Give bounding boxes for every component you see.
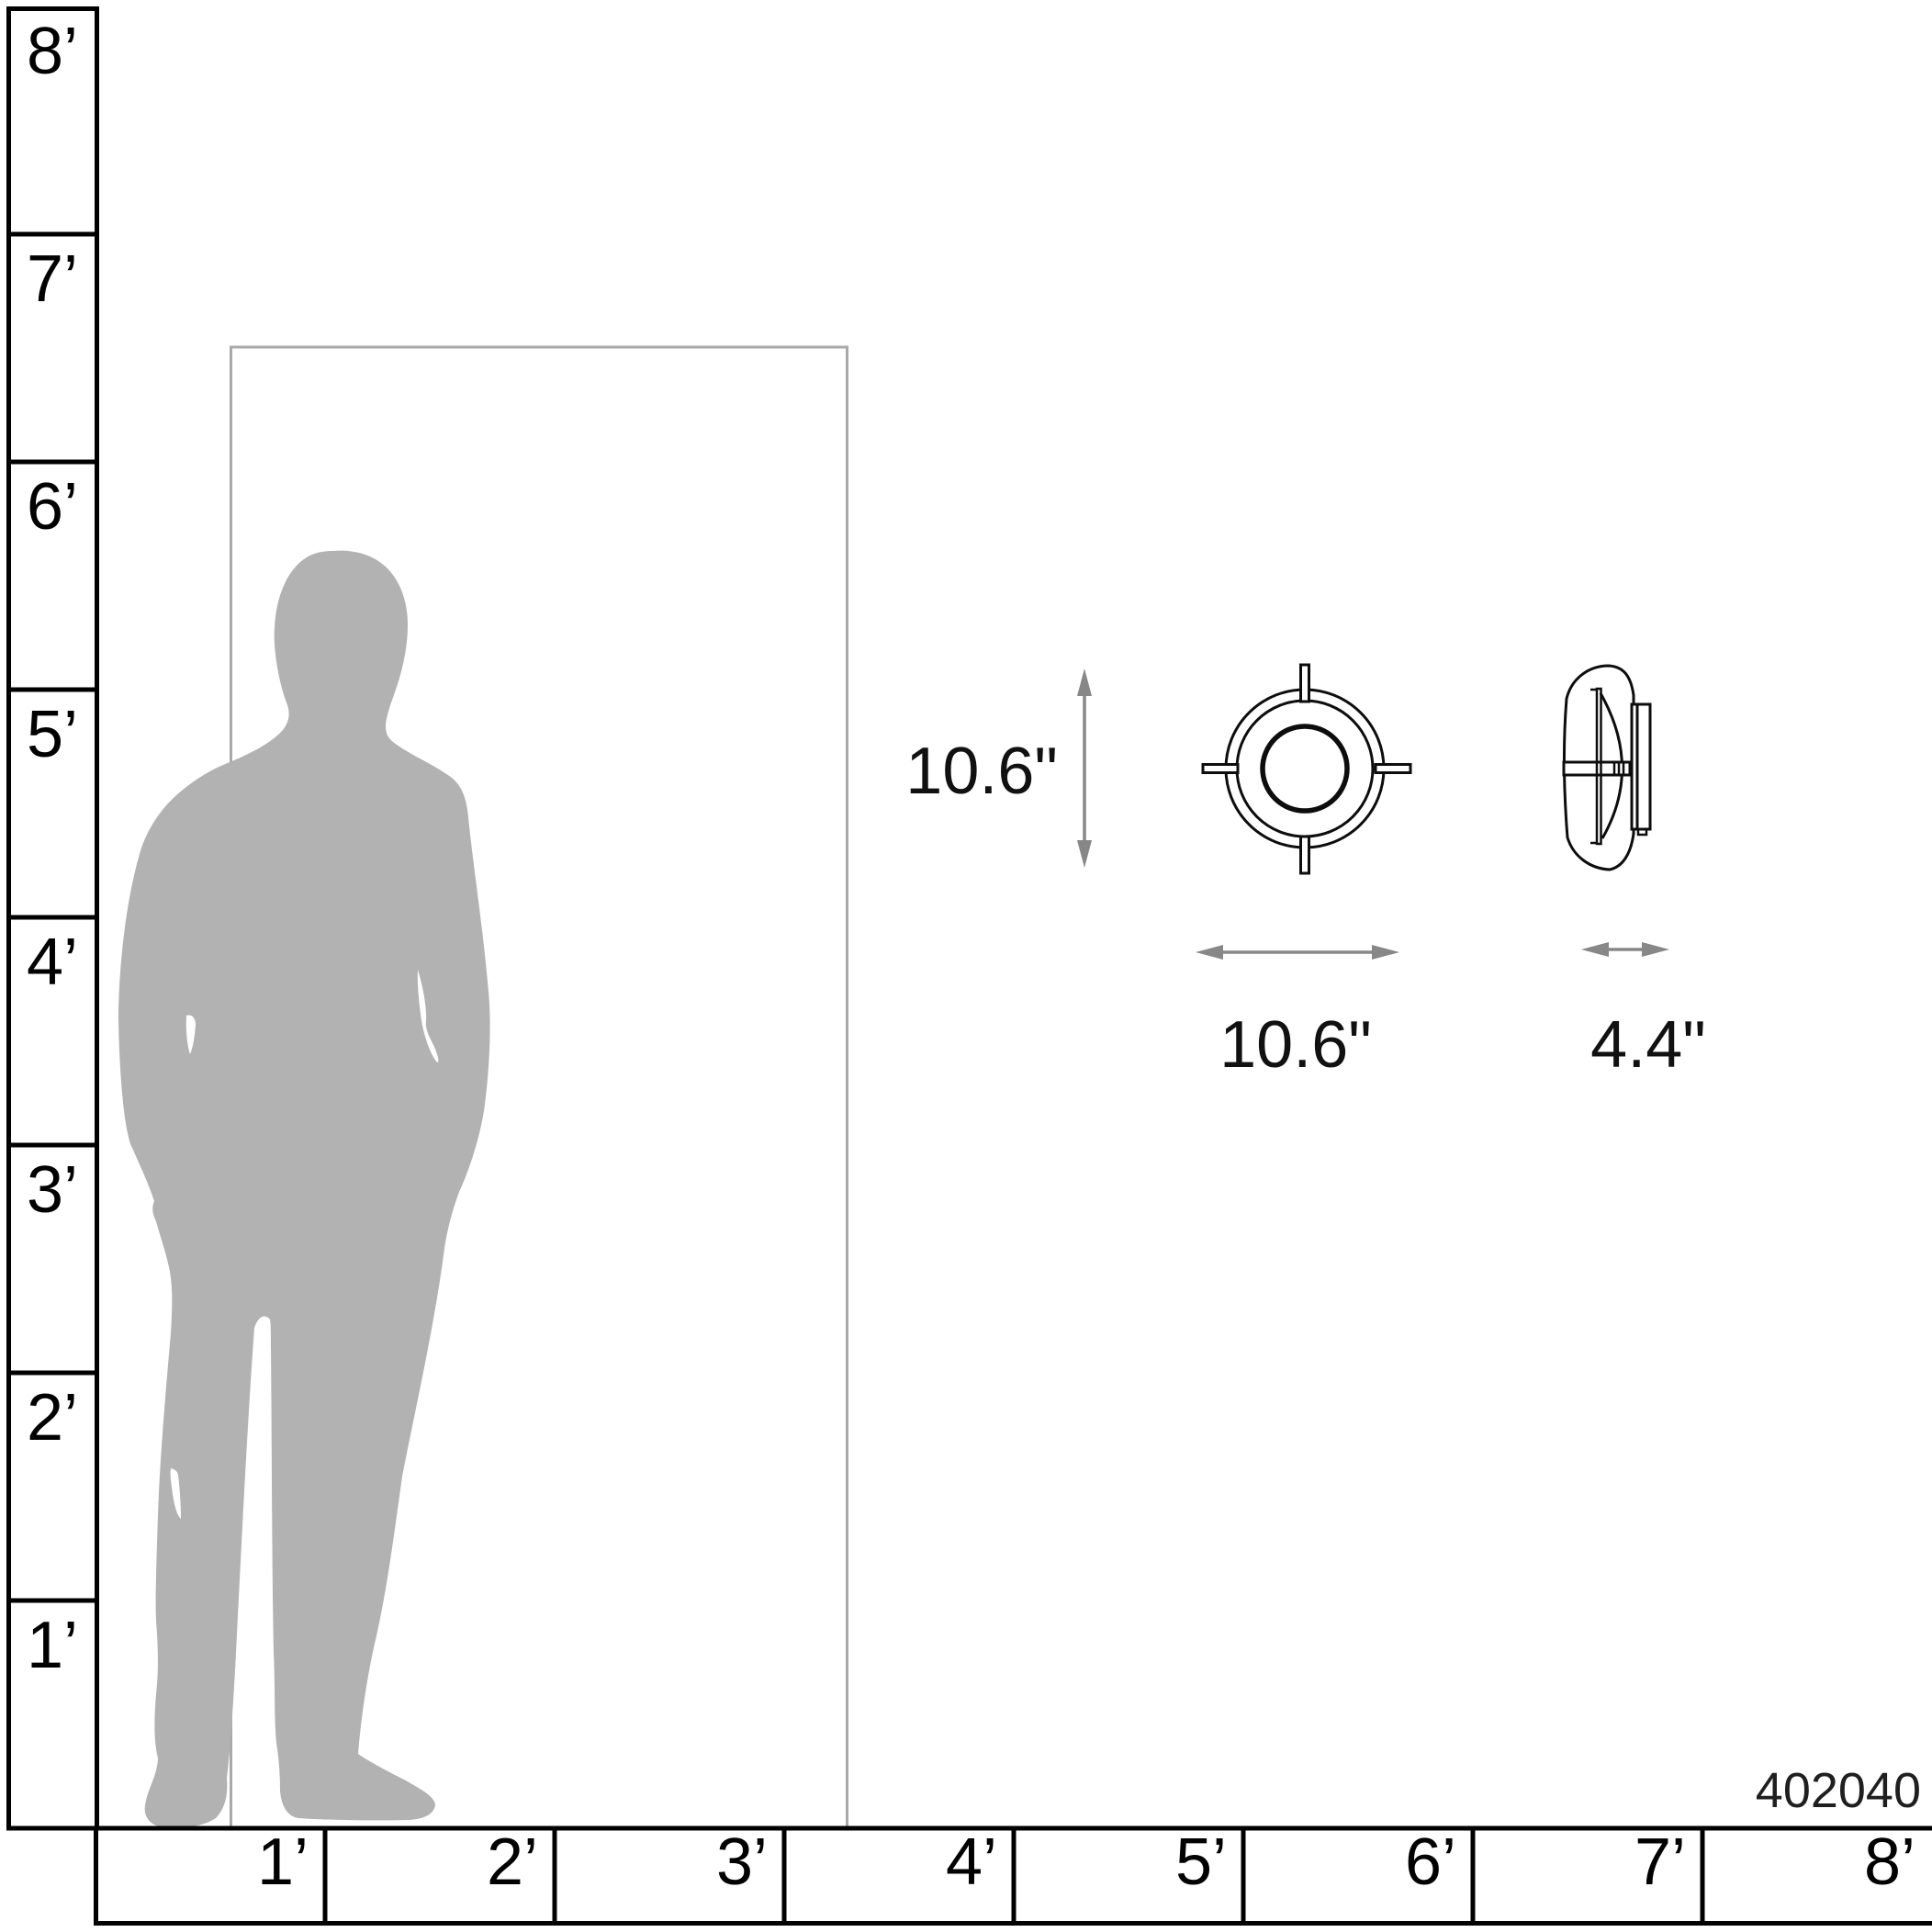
dimension-width: 10.6" [1196,945,1399,1082]
man-silhouette-body [118,551,490,1828]
fixture-side-plate-notch [1638,829,1646,835]
height-dimension-label: 10.6" [905,735,1058,808]
fixture-front-left-tab [1203,765,1238,773]
horizontal-ruler-label-8ft: 8’ [1864,1825,1915,1899]
horizontal-ruler: 1’ 2’ 3’ 4’ 5’ 6’ 7’ 8’ [6,1825,1932,1926]
vertical-ruler-label-3ft: 3’ [27,1153,78,1227]
vertical-ruler-label-6ft: 6’ [27,470,78,544]
width-arrow-head-right-icon [1372,945,1399,960]
depth-arrow-head-right-icon [1642,942,1669,957]
horizontal-ruler-label-3ft: 3’ [716,1825,768,1899]
man-silhouette-icon [118,551,490,1828]
height-arrow-head-up-icon [1077,668,1092,696]
fixture-front-top-tab [1301,665,1309,702]
height-arrow-head-down-icon [1077,840,1092,868]
horizontal-ruler-label-6ft: 6’ [1405,1825,1456,1899]
fixture-front-right-tab [1376,765,1410,773]
horizontal-ruler-label-7ft: 7’ [1634,1825,1686,1899]
horizontal-ruler-label-2ft: 2’ [487,1825,538,1899]
vertical-ruler: 8’ 7’ 6’ 5’ 4’ 3’ 2’ 1’ [6,6,99,1828]
vertical-ruler-label-2ft: 2’ [27,1381,78,1455]
vertical-ruler-label-4ft: 4’ [27,926,78,999]
fixture-front-view-icon [1203,665,1410,873]
product-code: 402040 [1756,1763,1921,1818]
vertical-ruler-label-5ft: 5’ [27,698,78,771]
width-dimension-label: 10.6" [1219,1008,1372,1082]
horizontal-ruler-label-1ft: 1’ [257,1825,309,1899]
fixture-front-lamp-circle [1263,726,1347,811]
diagram-canvas: 8’ 7’ 6’ 5’ 4’ 3’ 2’ 1’ 1’ 2’ 3’ 4’ 5’ 6… [0,0,1932,1932]
dimension-depth: 4.4" [1581,942,1706,1082]
horizontal-ruler-label-4ft: 4’ [946,1825,997,1899]
depth-dimension-label: 4.4" [1590,1008,1706,1082]
dimension-height: 10.6" [905,668,1092,868]
fixture-side-plate-back [1637,704,1650,829]
vertical-ruler-label-8ft: 8’ [27,15,78,88]
width-arrow-head-left-icon [1196,945,1223,960]
vertical-ruler-label-1ft: 1’ [27,1609,78,1682]
depth-arrow-head-left-icon [1581,942,1609,957]
horizontal-ruler-label-5ft: 5’ [1175,1825,1227,1899]
vertical-ruler-label-7ft: 7’ [27,242,78,316]
size-scale-diagram: 8’ 7’ 6’ 5’ 4’ 3’ 2’ 1’ 1’ 2’ 3’ 4’ 5’ 6… [0,0,1932,1932]
fixture-side-view-icon [1564,666,1650,870]
fixture-front-bottom-tab [1301,837,1309,873]
